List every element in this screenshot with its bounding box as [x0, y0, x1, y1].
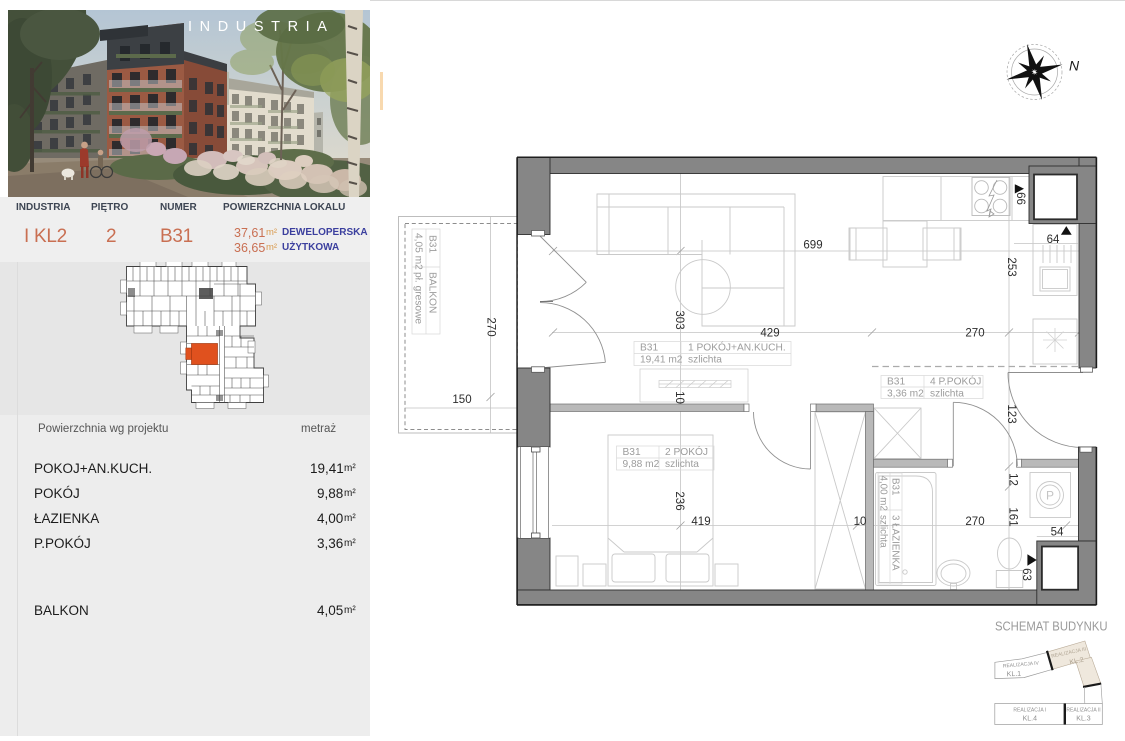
svg-text:10: 10: [854, 516, 867, 528]
svg-text:9,88 m2: 9,88 m2: [623, 459, 660, 470]
svg-text:429: 429: [760, 328, 779, 340]
svg-text:SCHEMAT BUDYNKU: SCHEMAT BUDYNKU: [995, 619, 1108, 634]
svg-text:4 P.POKÓJ: 4 P.POKÓJ: [930, 374, 981, 387]
svg-text:N: N: [1069, 58, 1080, 74]
svg-text:KL.4: KL.4: [1023, 716, 1038, 723]
svg-text:B31: B31: [887, 376, 905, 387]
svg-text:B31: B31: [623, 447, 641, 458]
svg-text:szlichta: szlichta: [665, 459, 699, 470]
svg-text:KL.3: KL.3: [1076, 716, 1091, 723]
svg-text:3,36 m2: 3,36 m2: [887, 388, 924, 399]
svg-text:150: 150: [452, 394, 471, 406]
svg-text:1 POKÓJ+AN.KUCH.: 1 POKÓJ+AN.KUCH.: [688, 341, 786, 354]
svg-text:szlichta: szlichta: [930, 388, 964, 399]
svg-text:270: 270: [485, 317, 497, 336]
svg-text:270: 270: [965, 516, 984, 528]
svg-text:12: 12: [1007, 473, 1019, 486]
svg-text:KL.1: KL.1: [1007, 671, 1022, 679]
svg-text:szlichta: szlichta: [688, 355, 722, 366]
svg-text:66: 66: [1014, 192, 1026, 205]
svg-text:B31: B31: [427, 235, 438, 253]
svg-text:3 ŁAZIENKA: 3 ŁAZIENKA: [890, 515, 901, 571]
svg-text:161: 161: [1007, 507, 1019, 526]
svg-text:419: 419: [691, 516, 710, 528]
svg-text:19,41 m2: 19,41 m2: [640, 355, 683, 366]
svg-text:253: 253: [1005, 257, 1017, 276]
svg-text:P: P: [1046, 489, 1054, 503]
svg-text:123: 123: [1005, 404, 1017, 423]
svg-text:szlichta: szlichta: [878, 515, 889, 548]
svg-text:REALIZACJA I: REALIZACJA I: [1013, 708, 1046, 714]
svg-text:64: 64: [1047, 234, 1060, 246]
svg-text:10: 10: [673, 391, 685, 404]
svg-text:303: 303: [673, 310, 685, 329]
svg-text:270: 270: [965, 328, 984, 340]
svg-text:4,00 m2: 4,00 m2: [878, 476, 889, 511]
svg-text:63: 63: [1020, 568, 1032, 581]
svg-text:699: 699: [803, 240, 822, 252]
svg-text:4,05 m2: 4,05 m2: [413, 233, 424, 270]
svg-text:236: 236: [673, 491, 685, 510]
svg-text:2 POKÓJ: 2 POKÓJ: [665, 445, 708, 458]
svg-text:REALIZACJA II: REALIZACJA II: [1066, 708, 1100, 714]
svg-text:pł. gresowe: pł. gresowe: [413, 272, 424, 324]
svg-text:54: 54: [1051, 527, 1064, 539]
svg-text:B31: B31: [640, 343, 658, 354]
svg-text:BALKON: BALKON: [427, 272, 438, 313]
svg-text:B31: B31: [890, 478, 901, 495]
